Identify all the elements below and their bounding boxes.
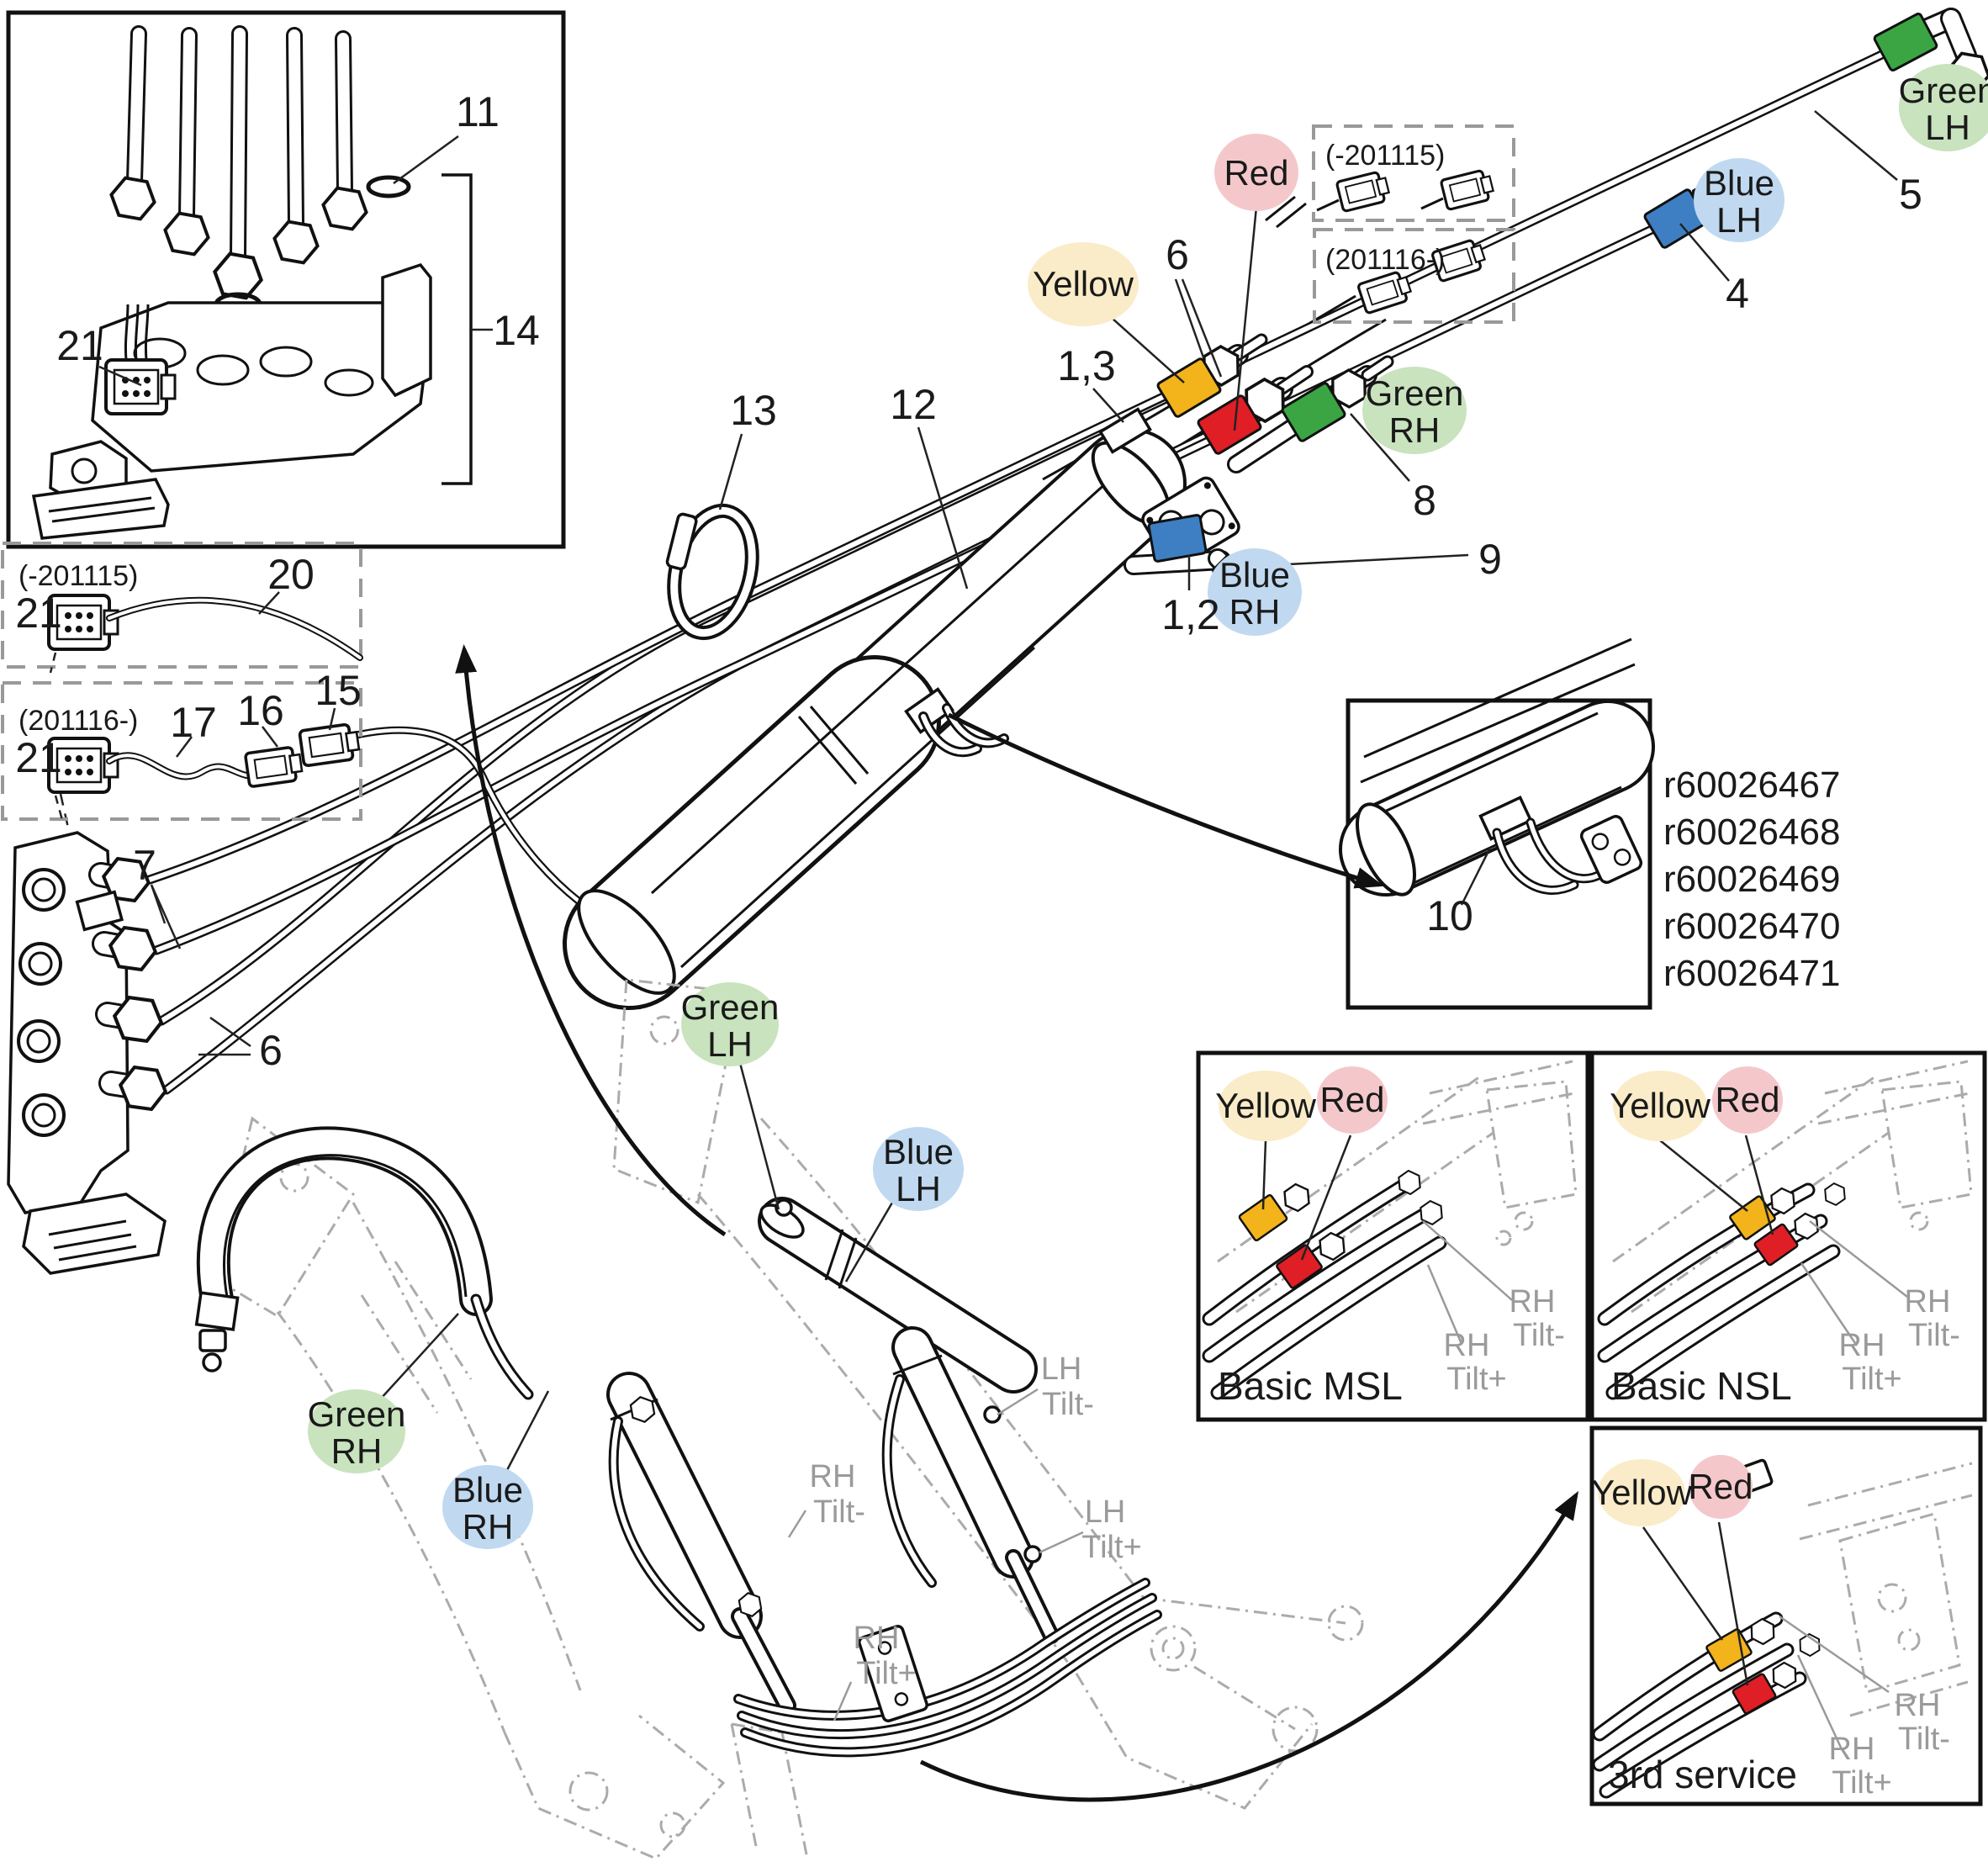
callout-11: 11 — [456, 88, 500, 135]
label-lh-tilt-minus-1: LH — [1041, 1351, 1082, 1387]
callout-4: 4 — [1726, 270, 1749, 317]
callout-20: 20 — [267, 551, 315, 598]
label-lh-tilt-minus-2: Tilt- — [1042, 1387, 1094, 1422]
label-nsl-rh-tilt-plus-1: RH — [1839, 1328, 1885, 1363]
label-rh-tilt-plus-1: RH — [854, 1621, 900, 1656]
label-green-rh-1: Green — [1366, 373, 1464, 413]
label-nsl-rh-tilt-minus-1: RH — [1905, 1284, 1951, 1320]
arm2-bucket-hoses — [738, 1583, 1157, 1752]
callout-6-top: 6 — [1166, 231, 1189, 278]
serial-late-top: (201116-) — [1325, 244, 1445, 276]
boom-conduit-12 — [563, 431, 1182, 1009]
callout-21-inset: 21 — [56, 322, 103, 369]
label-red-msl: Red — [1319, 1080, 1384, 1119]
label-msl-rh-tilt-minus-2: Tilt- — [1513, 1318, 1565, 1353]
label-red-3rd: Red — [1688, 1467, 1753, 1506]
callout-8: 8 — [1413, 477, 1436, 524]
parts-diagram-canvas: 11 21 14 13 12 1,3 6 Yellow Red 5 4 Gree… — [0, 0, 1988, 1867]
label-blue-rh-2: RH — [1229, 592, 1281, 632]
label-3rd-rh-tilt-minus-1: RH — [1895, 1688, 1941, 1723]
label-green-lh-1: Green — [1899, 71, 1988, 110]
label-blue-rh-1: Blue — [1219, 555, 1290, 595]
label-blue-lh-arm-2: LH — [896, 1169, 941, 1209]
label-red-nsl: Red — [1715, 1080, 1779, 1119]
arm1-hose-loop — [197, 1143, 528, 1394]
label-nsl-rh-tilt-minus-2: Tilt- — [1908, 1318, 1960, 1353]
label-blue-lh-arm-1: Blue — [883, 1132, 954, 1172]
label-rh-tilt-plus-2: Tilt+ — [856, 1656, 916, 1691]
parts-diagram-page: 11 21 14 13 12 1,3 6 Yellow Red 5 4 Gree… — [0, 0, 1988, 1867]
part-number-2: r60026468 — [1663, 812, 1840, 853]
callout-14: 14 — [493, 307, 540, 354]
callout-21-late: 21 — [15, 734, 62, 781]
callout-16: 16 — [237, 687, 284, 734]
callout-9: 9 — [1478, 536, 1502, 583]
part-number-3: r60026469 — [1663, 859, 1840, 900]
arm1-tilt-cylinder — [611, 1394, 787, 1706]
label-yellow-main: Yellow — [1033, 264, 1134, 304]
title-basic-nsl: Basic NSL — [1611, 1364, 1792, 1408]
callout-10: 10 — [1426, 892, 1473, 939]
label-red-main: Red — [1224, 153, 1288, 193]
serial-early-left: (-201115) — [19, 560, 138, 592]
label-nsl-rh-tilt-plus-2: Tilt+ — [1842, 1362, 1901, 1397]
label-3rd-rh-tilt-plus-1: RH — [1829, 1732, 1875, 1767]
arm2-tilt-cylinder — [887, 1347, 1051, 1636]
callout-6-left: 6 — [259, 1027, 283, 1074]
callout-21-early: 21 — [15, 590, 62, 637]
title-basic-msl: Basic MSL — [1218, 1364, 1403, 1408]
arrow-to-clamp-inset — [949, 715, 1379, 885]
label-green-rh-arm-2: RH — [331, 1431, 383, 1471]
label-green-lh-2: LH — [1925, 108, 1970, 147]
label-yellow-msl: Yellow — [1215, 1086, 1317, 1125]
label-msl-rh-tilt-minus-1: RH — [1510, 1284, 1556, 1320]
callout-13: 13 — [730, 387, 777, 434]
band-blue-rh — [1148, 515, 1206, 562]
label-yellow-nsl: Yellow — [1610, 1086, 1711, 1125]
label-blue-rh-arm-1: Blue — [452, 1470, 523, 1510]
arm2-lift-cylinder — [756, 1198, 1013, 1369]
label-green-lh-arm-1: Green — [681, 987, 780, 1027]
serial-late-left: (201116-) — [19, 705, 138, 737]
label-blue-lh-1: Blue — [1704, 163, 1774, 203]
label-msl-rh-tilt-plus-1: RH — [1444, 1328, 1490, 1363]
label-green-rh-arm-1: Green — [308, 1394, 406, 1434]
callout-1-3: 1,3 — [1057, 342, 1116, 389]
part-number-4: r60026470 — [1663, 906, 1840, 947]
title-3rd-service: 3rd service — [1608, 1753, 1797, 1796]
label-lh-tilt-plus-2: Tilt+ — [1081, 1530, 1141, 1565]
label-3rd-rh-tilt-plus-2: Tilt+ — [1832, 1765, 1891, 1801]
label-blue-rh-arm-2: RH — [463, 1507, 514, 1547]
label-rh-tilt-minus-1: RH — [810, 1459, 856, 1494]
part-number-5: r60026471 — [1663, 953, 1840, 994]
label-blue-lh-2: LH — [1716, 200, 1762, 240]
callout-12: 12 — [890, 381, 937, 428]
label-3rd-rh-tilt-minus-2: Tilt- — [1898, 1722, 1950, 1757]
inset-clamp-detail — [1346, 639, 1650, 1008]
label-green-rh-2: RH — [1389, 410, 1441, 450]
serial-early-top: (-201115) — [1325, 140, 1445, 172]
callout-7: 7 — [133, 842, 156, 889]
part-number-1: r60026467 — [1663, 764, 1840, 806]
label-lh-tilt-plus-1: LH — [1085, 1494, 1126, 1530]
label-yellow-3rd: Yellow — [1591, 1473, 1693, 1512]
label-msl-rh-tilt-plus-2: Tilt+ — [1446, 1362, 1506, 1397]
callout-15: 15 — [315, 667, 362, 714]
label-green-lh-arm-2: LH — [707, 1024, 753, 1064]
label-rh-tilt-minus-2: Tilt- — [813, 1494, 865, 1530]
callout-1-2: 1,2 — [1161, 591, 1220, 638]
callout-5: 5 — [1899, 171, 1922, 218]
callout-17: 17 — [170, 699, 217, 746]
